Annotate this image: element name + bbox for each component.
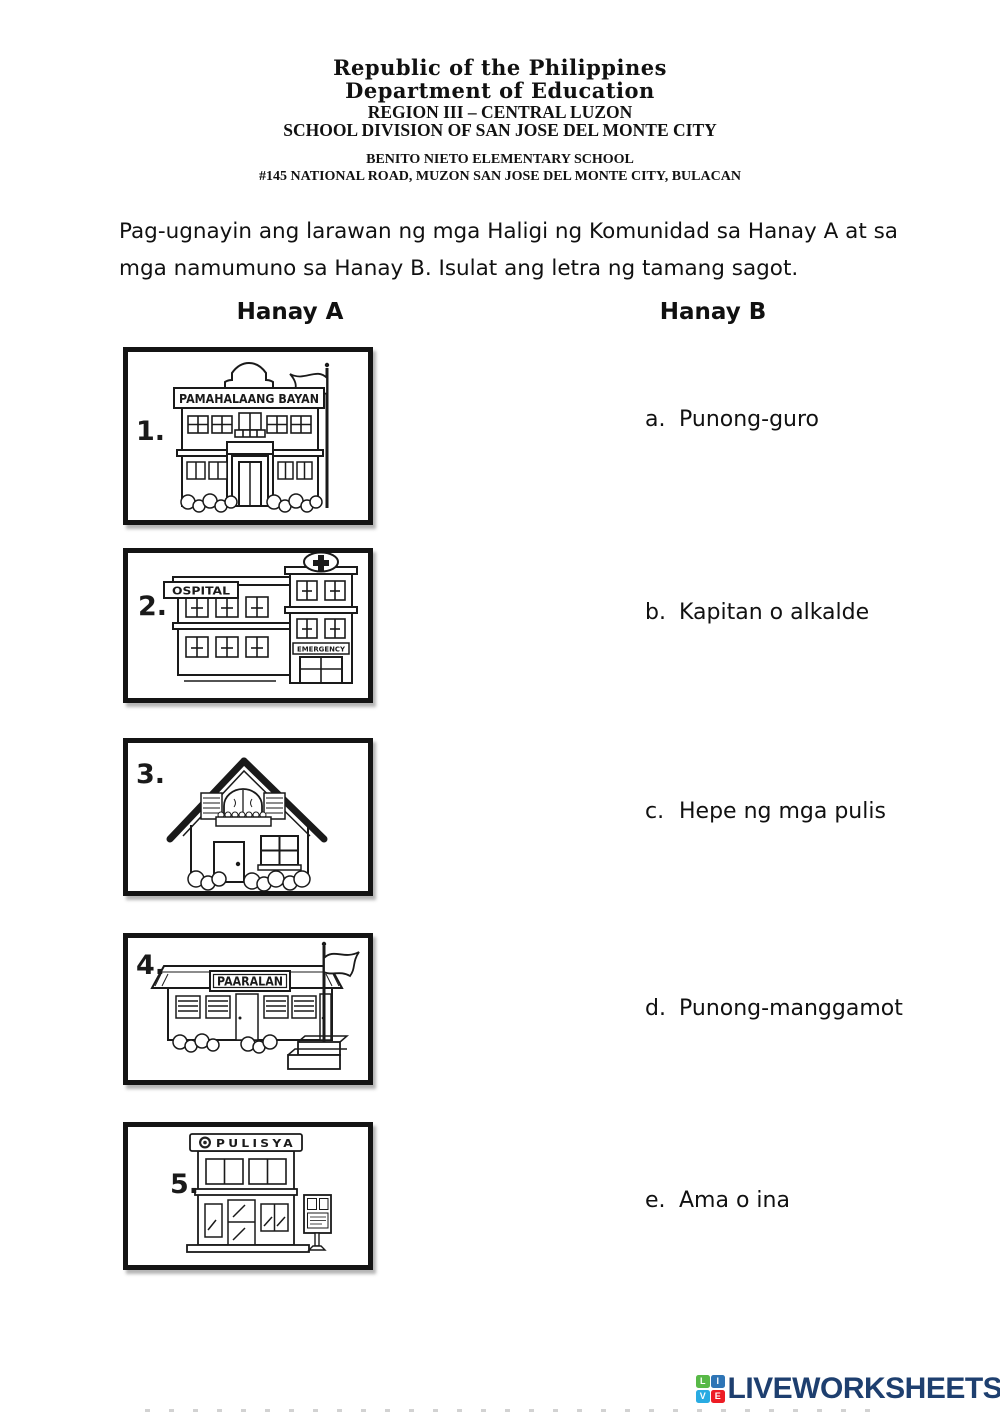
sign-emergency: EMERGENCY (297, 646, 346, 654)
item-box-1-pamahalaang-bayan: 1. (123, 347, 373, 525)
answer-letter-c: c. (645, 799, 679, 825)
next-page-text-edge (145, 1409, 875, 1412)
hospital-illustration: OSPITAL EMERGENCY (128, 553, 368, 698)
column-header-hanay-a: Hanay A (237, 299, 344, 327)
logo-tile-e: E (711, 1390, 725, 1404)
answer-letter-a: a. (645, 407, 679, 433)
answer-text-e: Ama o ina (679, 1188, 790, 1214)
instructions: Pag-ugnayin ang larawan ng mga Haligi ng… (119, 213, 909, 287)
sign-pamahalaang-bayan: PAMAHALAANG BAYAN (179, 392, 319, 406)
answer-row-e: e. Ama o ina (645, 1188, 790, 1214)
liveworksheets-logo[interactable]: L I V E LIVEWORKSHEETS (696, 1374, 1000, 1404)
answer-row-b: b. Kapitan o alkalde (645, 600, 869, 626)
answer-row-c: c. Hepe ng mga pulis (645, 799, 886, 825)
header-department: Department of Education (0, 79, 1000, 102)
answer-letter-b: b. (645, 600, 679, 626)
instructions-line-2: mga namumuno sa Hanay B. Isulat ang letr… (119, 250, 909, 287)
header-division: SCHOOL DIVISION OF SAN JOSE DEL MONTE CI… (0, 121, 1000, 140)
header-republic: Republic of the Philippines (0, 56, 1000, 79)
flag-icon (324, 952, 359, 976)
column-header-hanay-b: Hanay B (660, 299, 767, 327)
answer-text-d: Punong-manggamot (679, 996, 903, 1022)
answer-letter-e: e. (645, 1188, 679, 1214)
bushes (188, 871, 310, 891)
sign-pulisya: PULISYA (216, 1137, 296, 1150)
instructions-line-1: Pag-ugnayin ang larawan ng mga Haligi ng… (119, 213, 909, 250)
logo-tile-l: L (696, 1375, 710, 1389)
item-number-2: 2. (138, 593, 167, 620)
item-box-2-ospital: 2. (123, 548, 373, 703)
item-number-3: 3. (136, 761, 165, 788)
sign-paaralan: PAARALAN (217, 975, 283, 989)
item-box-5-pulisya: 5. (123, 1122, 373, 1270)
street-signboard (304, 1195, 331, 1250)
answer-text-a: Punong-guro (679, 407, 819, 433)
header-school-address: #145 NATIONAL ROAD, MUZON SAN JOSE DEL M… (0, 169, 1000, 184)
logo-tile-v: V (696, 1390, 710, 1404)
police-badge-icon (199, 1137, 211, 1149)
item-number-4: 4. (136, 952, 165, 979)
header-school-name: BENITO NIETO ELEMENTARY SCHOOL (0, 152, 1000, 167)
police-station-illustration: PULISYA (128, 1127, 368, 1265)
liveworksheets-tiles-icon: L I V E (696, 1375, 725, 1404)
answer-text-c: Hepe ng mga pulis (679, 799, 886, 825)
attic-shutter-right (264, 793, 285, 819)
answer-text-b: Kapitan o alkalde (679, 600, 869, 626)
answer-row-d: d. Punong-manggamot (645, 996, 903, 1022)
sign-ospital: OSPITAL (172, 585, 230, 598)
item-box-4-paaralan: 4. (123, 933, 373, 1085)
answer-row-a: a. Punong-guro (645, 407, 819, 433)
item-number-1: 1. (136, 418, 165, 445)
item-number-5: 5. (170, 1171, 199, 1198)
logo-tile-i: I (711, 1375, 725, 1389)
liveworksheets-wordmark: LIVEWORKSHEETS (728, 1374, 1000, 1404)
item-box-3-bahay: 3. (123, 738, 373, 896)
answer-letter-d: d. (645, 996, 679, 1022)
